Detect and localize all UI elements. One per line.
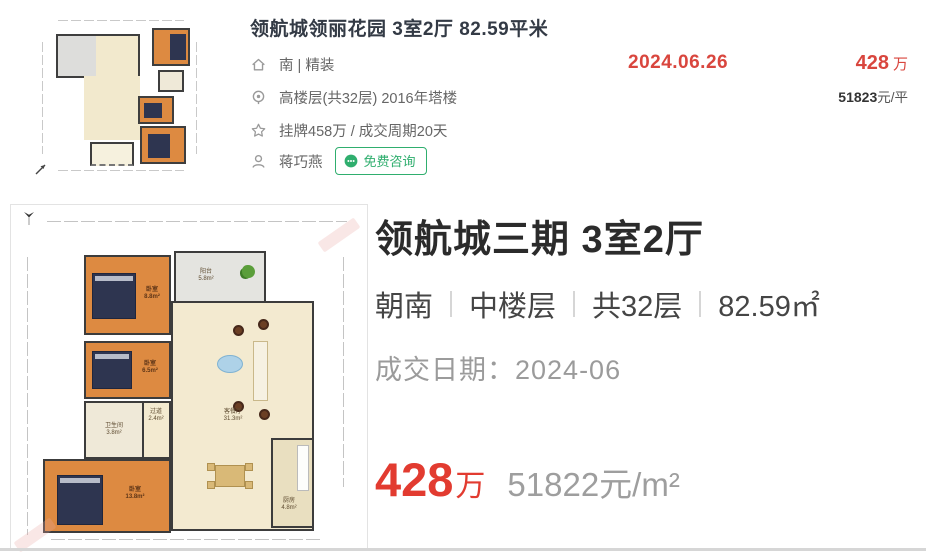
- listing-title[interactable]: 领航城领丽花园 3室2厅 82.59平米: [250, 14, 910, 41]
- mini-room-living-ext: [84, 76, 140, 140]
- unit-price: 51823元/平: [838, 86, 908, 106]
- room-label: 厨房: [283, 498, 295, 504]
- floorplan-large: 卧室 8.8m² 阳台 5.8m² 客餐厅 31.3m²: [10, 204, 368, 550]
- room-area: 2.4m²: [148, 416, 163, 422]
- room-hallway: 过道 2.4m²: [144, 401, 171, 459]
- unit-price-value: 51823: [838, 89, 877, 105]
- armchair-icon: [233, 325, 244, 336]
- dimension-line: [27, 257, 28, 535]
- star-icon: [250, 122, 267, 139]
- detail-price: 428 万 51822元/m²: [375, 452, 680, 507]
- attr-floor: 中楼层: [469, 283, 556, 325]
- detail-unit-price: 51822元/m²: [507, 458, 679, 506]
- mini-room-kitchen: [56, 34, 98, 78]
- room-area: 3.8m²: [106, 430, 121, 436]
- detail-price-unit: 万: [455, 461, 485, 505]
- room-label: 卧室: [129, 487, 141, 493]
- room-kitchen: 厨房 4.8m²: [271, 438, 314, 528]
- consult-button-label: 免费咨询: [364, 151, 416, 170]
- deal-price-unit: 万: [893, 56, 908, 73]
- separator: [699, 291, 701, 317]
- dining-chair-icon: [207, 481, 215, 489]
- room-bedroom-1: 卧室 8.8m²: [84, 255, 171, 335]
- room-bathroom: 卫生间 3.8m²: [84, 401, 144, 459]
- dimension-line: [196, 42, 197, 154]
- room-area: 4.8m²: [281, 505, 296, 511]
- room-area: 8.8m²: [144, 294, 160, 300]
- room-area: 31.3m²: [224, 416, 243, 422]
- mini-room-bathroom: [158, 70, 184, 92]
- listing-price-cycle: 挂牌458万 / 成交周期20天: [279, 120, 447, 141]
- home-icon: [250, 56, 267, 73]
- orientation-decoration: 南 | 精装: [279, 54, 334, 75]
- armchair-icon: [259, 409, 270, 420]
- north-compass-icon: [21, 211, 37, 227]
- room-label: 卧室: [146, 287, 158, 293]
- deal-price-value: 428: [856, 52, 889, 74]
- watermark: [318, 217, 361, 252]
- separator: [573, 291, 575, 317]
- armchair-icon: [258, 319, 269, 330]
- sofa-icon: [253, 341, 268, 401]
- deal-date-value: 2024-06: [515, 355, 621, 385]
- dimension-line: [47, 221, 347, 222]
- room-label: 卧室: [144, 361, 156, 367]
- listing-page: 领航城领丽花园 3室2厅 82.59平米 南 | 精装 高楼层(共32层) 20…: [0, 0, 926, 555]
- room-label: 卫生间: [105, 423, 123, 429]
- attr-area: 82.59㎡: [718, 283, 820, 325]
- dimension-line: [51, 539, 321, 540]
- dining-chair-icon: [207, 463, 215, 471]
- detail-title: 领航城三期 3室2厅: [375, 208, 915, 263]
- deal-date-label: 成交日期：: [375, 355, 515, 385]
- deal-date: 2024.06.26: [628, 52, 728, 74]
- attr-orientation: 朝南: [375, 283, 433, 325]
- detail-attributes: 朝南 中楼层 共32层 82.59㎡: [375, 283, 820, 325]
- mini-room-bedroom: [140, 126, 186, 164]
- dining-table-icon: [215, 465, 245, 487]
- deal-price: 428万: [856, 52, 908, 75]
- free-consult-button[interactable]: 免费咨询: [335, 147, 427, 175]
- dimension-line: [58, 170, 184, 171]
- attr-total-floors: 共32层: [592, 283, 682, 325]
- bottom-divider: [0, 548, 926, 551]
- chat-bubble-icon: [344, 154, 358, 168]
- location-pin-icon: [250, 89, 267, 106]
- coffee-table-icon: [217, 355, 243, 373]
- mini-room-bedroom: [138, 96, 174, 124]
- dimension-line: [343, 257, 344, 487]
- room-label: 客餐厅: [224, 409, 242, 415]
- agent-name: 蒋巧燕: [279, 151, 323, 172]
- dining-chair-icon: [245, 463, 253, 471]
- dimension-line: [58, 20, 184, 21]
- mini-room-bedroom: [152, 28, 190, 66]
- compass-icon: [34, 160, 50, 176]
- detail-price-value: 428: [375, 452, 453, 507]
- floor-building-info: 高楼层(共32层) 2016年塔楼: [279, 87, 457, 108]
- room-area: 5.8m²: [198, 276, 213, 282]
- dining-chair-icon: [245, 481, 253, 489]
- person-icon: [250, 153, 267, 170]
- plant-icon: [242, 265, 255, 278]
- room-area: 13.8m²: [125, 494, 144, 500]
- room-bedroom-3: 卧室 13.8m²: [43, 459, 171, 533]
- dimension-line: [42, 42, 43, 154]
- unit-price-suffix: 元/平: [877, 90, 908, 105]
- room-label: 过道: [150, 409, 162, 415]
- mini-room-balcony: [90, 142, 134, 166]
- counter-icon: [297, 445, 309, 491]
- room-area: 6.5m²: [142, 368, 158, 374]
- separator: [450, 291, 452, 317]
- floorplan-thumbnail[interactable]: [34, 12, 210, 184]
- room-balcony: 阳台 5.8m²: [174, 251, 266, 303]
- room-label: 阳台: [200, 269, 212, 275]
- detail-deal-date: 成交日期：2024-06: [375, 348, 621, 387]
- room-bedroom-2: 卧室 6.5m²: [84, 341, 171, 399]
